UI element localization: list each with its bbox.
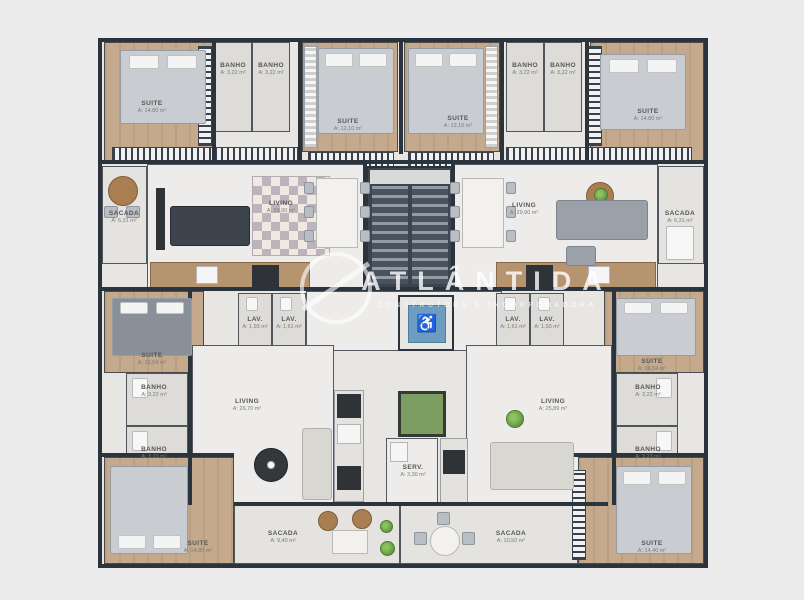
dining-chair <box>304 206 314 218</box>
wardrobe-strip <box>485 46 498 148</box>
sofa <box>170 206 250 246</box>
kitchen-counter <box>150 262 310 289</box>
pillow <box>129 55 159 69</box>
pillow <box>415 53 443 67</box>
stair-flight <box>412 186 448 284</box>
balcony-chair <box>352 509 372 529</box>
stove-cooktop <box>337 466 361 490</box>
pillow <box>449 53 477 67</box>
balcony-chair <box>126 206 140 218</box>
accessible-elevator-area: ♿ <box>408 305 446 343</box>
wall <box>585 42 589 162</box>
bed <box>110 466 188 554</box>
room-banho-top-right-2 <box>544 42 582 132</box>
dining-chair <box>304 230 314 242</box>
sofa <box>556 200 648 240</box>
pillow <box>120 302 148 314</box>
dining-chair <box>360 230 370 242</box>
stair-core <box>366 166 454 290</box>
wall <box>212 42 216 162</box>
dining-chair <box>506 230 516 242</box>
toilet <box>504 297 516 311</box>
dining-chair <box>450 230 460 242</box>
stair-flight <box>372 186 408 284</box>
toilet <box>246 297 258 311</box>
tv-panel <box>156 188 165 250</box>
plant <box>380 541 395 556</box>
balcony-chair <box>462 532 475 545</box>
shower <box>656 378 672 398</box>
bed <box>616 466 692 554</box>
kitchen-sink <box>196 266 218 284</box>
wall <box>234 502 608 506</box>
sofa <box>490 442 574 490</box>
pillow <box>624 302 652 314</box>
bed <box>408 48 484 134</box>
balcony-chair <box>104 206 118 218</box>
room-banho-top-left-2 <box>252 42 290 132</box>
pillow <box>156 302 184 314</box>
kitchen-sink <box>588 266 610 284</box>
pillow <box>118 535 146 549</box>
dining-table <box>462 178 504 248</box>
room-banho-top-left-1 <box>214 42 252 132</box>
pillow <box>658 471 686 485</box>
pillow <box>623 471 651 485</box>
wall <box>98 453 234 457</box>
kitchen-counter <box>496 262 656 289</box>
room-banho-top-right-1 <box>506 42 544 132</box>
balcony-table <box>430 526 460 556</box>
pantry-green-area <box>398 391 446 437</box>
toilet <box>538 297 550 311</box>
balcony-chair <box>437 512 450 525</box>
bed <box>600 54 686 130</box>
dining-chair <box>450 182 460 194</box>
plant <box>506 410 524 428</box>
dining-chair <box>360 206 370 218</box>
bed <box>616 298 696 356</box>
balcony-table <box>108 176 138 206</box>
dining-chair <box>360 182 370 194</box>
pillow <box>167 55 197 69</box>
pillow <box>359 53 387 67</box>
cup <box>267 461 275 469</box>
stove-cooktop <box>526 265 553 287</box>
wall <box>500 42 504 162</box>
balcony-chair <box>318 511 338 531</box>
dining-chair <box>450 206 460 218</box>
dining-chair <box>506 182 516 194</box>
toilet <box>280 297 292 311</box>
wall <box>98 160 708 164</box>
wall <box>570 453 708 457</box>
window-railing <box>572 470 586 560</box>
shower <box>656 431 672 451</box>
stove-cooktop <box>252 265 279 287</box>
sofa <box>302 428 332 500</box>
room-sacada-bottom-left <box>234 505 400 564</box>
shower <box>132 378 148 398</box>
wall <box>298 42 302 162</box>
plant <box>380 520 393 533</box>
pillow <box>153 535 181 549</box>
washer <box>390 442 408 462</box>
shower <box>132 431 148 451</box>
bed <box>318 48 394 134</box>
wall <box>399 42 403 154</box>
pillow <box>660 302 688 314</box>
wardrobe-strip <box>304 46 317 148</box>
balcony-table <box>332 530 368 554</box>
dining-chair <box>304 182 314 194</box>
dining-table <box>316 178 358 248</box>
lounge-chair <box>666 226 694 260</box>
pillow <box>647 59 677 73</box>
dining-chair <box>506 206 516 218</box>
accessibility-icon: ♿ <box>416 314 437 334</box>
ottoman <box>566 246 596 266</box>
stair-landing <box>370 170 450 184</box>
kitchen-sink <box>337 424 361 444</box>
wall <box>451 160 455 291</box>
stove-cooktop <box>443 450 465 474</box>
bed <box>112 298 192 356</box>
pillow <box>609 59 639 73</box>
fridge <box>337 394 361 418</box>
pillow <box>325 53 353 67</box>
floorplan-canvas: ♿ <box>0 0 804 600</box>
balcony-chair <box>414 532 427 545</box>
bed <box>120 50 206 124</box>
